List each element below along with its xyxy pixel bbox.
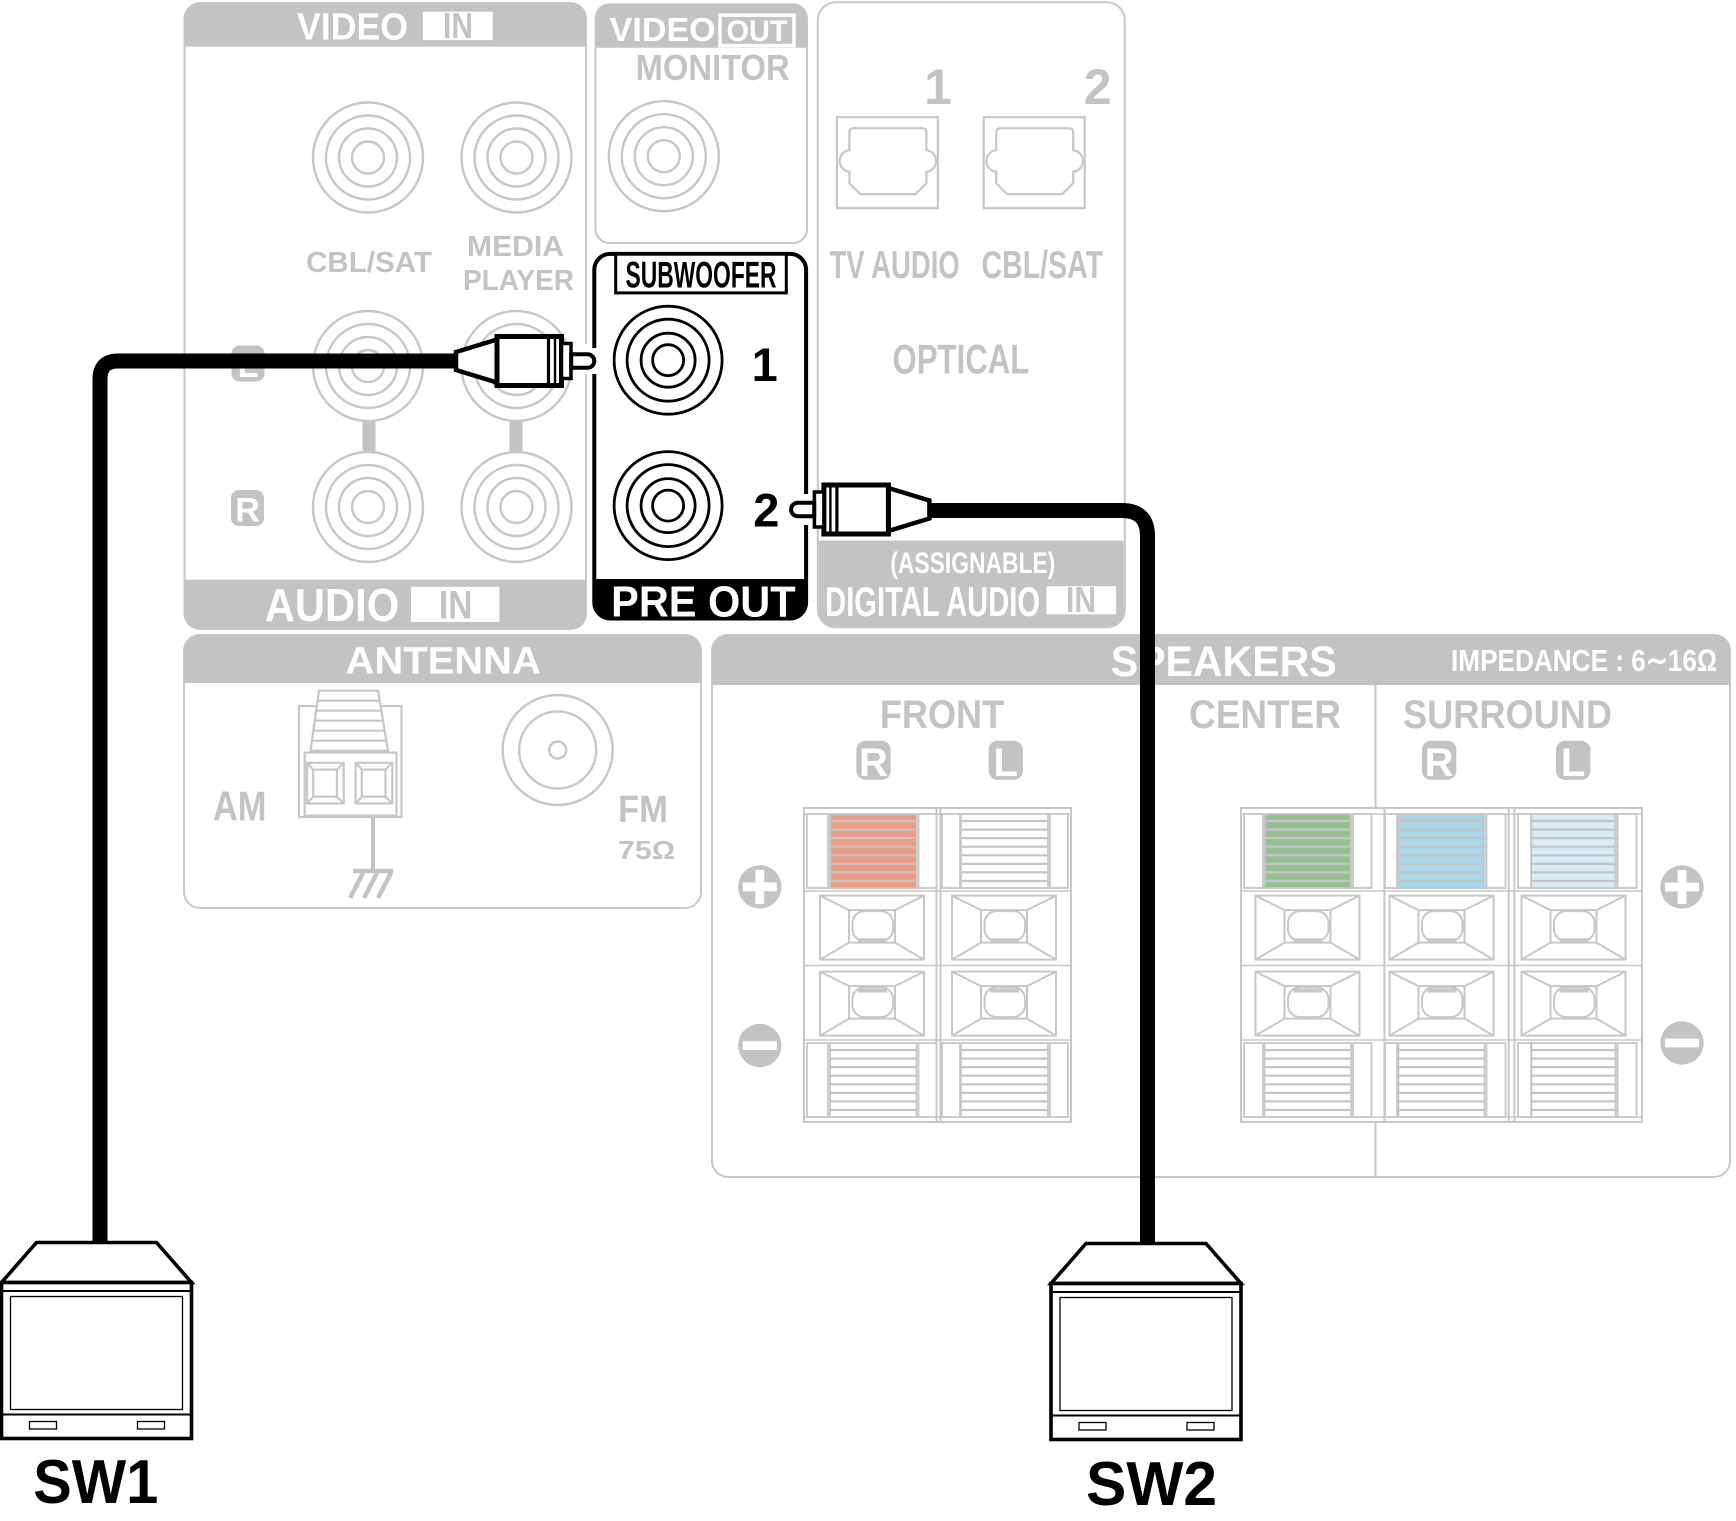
svg-text:OPTICAL: OPTICAL — [893, 335, 1030, 382]
svg-text:PLAYER: PLAYER — [463, 265, 574, 297]
svg-text:R: R — [859, 741, 888, 785]
svg-text:OUT: OUT — [727, 15, 788, 48]
svg-text:IMPEDANCE : 6∼16Ω: IMPEDANCE : 6∼16Ω — [1451, 643, 1717, 678]
svg-text:CENTER: CENTER — [1189, 693, 1341, 737]
svg-text:R: R — [235, 492, 260, 530]
svg-text:CBL/SAT: CBL/SAT — [306, 247, 432, 279]
svg-text:MONITOR: MONITOR — [636, 47, 790, 88]
svg-text:SW1: SW1 — [33, 1448, 158, 1517]
svg-text:FRONT: FRONT — [880, 693, 1004, 737]
svg-text:1: 1 — [752, 338, 778, 391]
svg-text:SUBWOOFER: SUBWOOFER — [626, 255, 777, 296]
svg-text:1: 1 — [924, 59, 952, 115]
svg-text:R: R — [1425, 741, 1454, 785]
svg-text:AUDIO: AUDIO — [265, 579, 400, 631]
svg-text:2: 2 — [1084, 59, 1112, 115]
svg-text:TV AUDIO: TV AUDIO — [829, 244, 959, 287]
svg-text:IN: IN — [439, 584, 472, 628]
svg-text:L: L — [993, 741, 1017, 785]
svg-text:MEDIA: MEDIA — [467, 231, 564, 263]
svg-text:SW2: SW2 — [1086, 1450, 1217, 1519]
svg-text:VIDEO: VIDEO — [610, 11, 716, 48]
svg-text:ANTENNA: ANTENNA — [346, 641, 541, 683]
svg-text:IN: IN — [1066, 579, 1096, 620]
svg-text:(ASSIGNABLE): (ASSIGNABLE) — [890, 547, 1055, 580]
svg-text:DIGITAL AUDIO: DIGITAL AUDIO — [825, 578, 1040, 625]
svg-text:AM: AM — [213, 783, 267, 830]
svg-text:SURROUND: SURROUND — [1403, 693, 1612, 737]
svg-text:2: 2 — [753, 483, 779, 536]
svg-text:CBL/SAT: CBL/SAT — [982, 244, 1104, 287]
svg-text:PRE OUT: PRE OUT — [611, 578, 796, 627]
svg-text:FM: FM — [618, 789, 668, 831]
svg-text:L: L — [1561, 741, 1585, 785]
svg-text:VIDEO: VIDEO — [297, 7, 408, 49]
svg-text:IN: IN — [443, 5, 473, 46]
svg-text:75Ω: 75Ω — [618, 835, 675, 865]
